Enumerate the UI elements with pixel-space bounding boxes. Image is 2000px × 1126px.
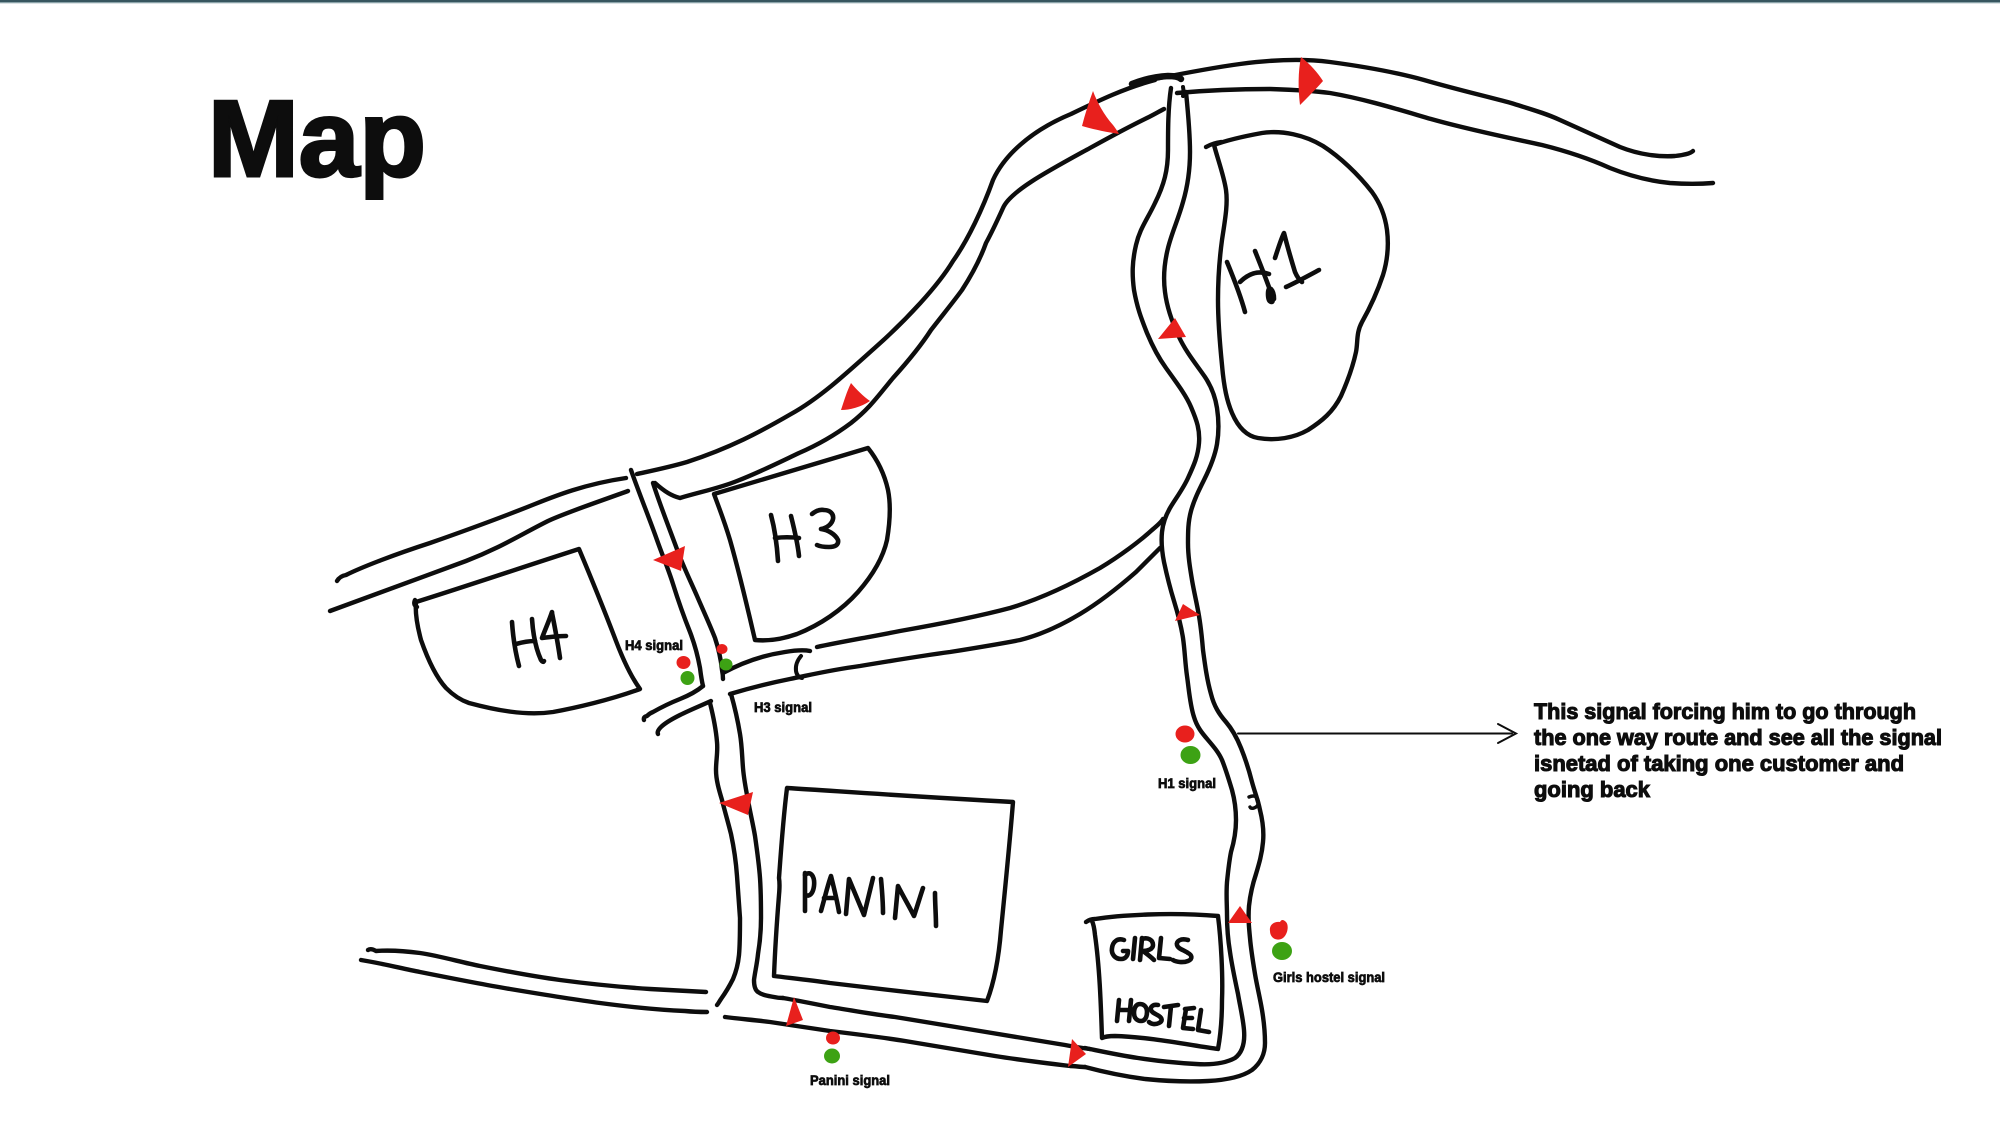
svg-text:Girls hostel signal: Girls hostel signal — [1273, 970, 1385, 985]
svg-text:H3 signal: H3 signal — [754, 700, 812, 715]
svg-text:H1 signal: H1 signal — [1158, 776, 1216, 791]
svg-text:H4 signal: H4 signal — [625, 638, 683, 653]
svg-text:isnetad of taking one customer: isnetad of taking one customer and — [1534, 751, 1904, 776]
svg-text:This signal forcing him to go: This signal forcing him to go through — [1534, 699, 1916, 724]
svg-text:going back: going back — [1534, 777, 1650, 802]
svg-text:Map: Map — [208, 78, 426, 200]
svg-text:Panini signal: Panini signal — [810, 1073, 890, 1088]
svg-text:the one way route and see all: the one way route and see all the signal — [1534, 725, 1942, 750]
